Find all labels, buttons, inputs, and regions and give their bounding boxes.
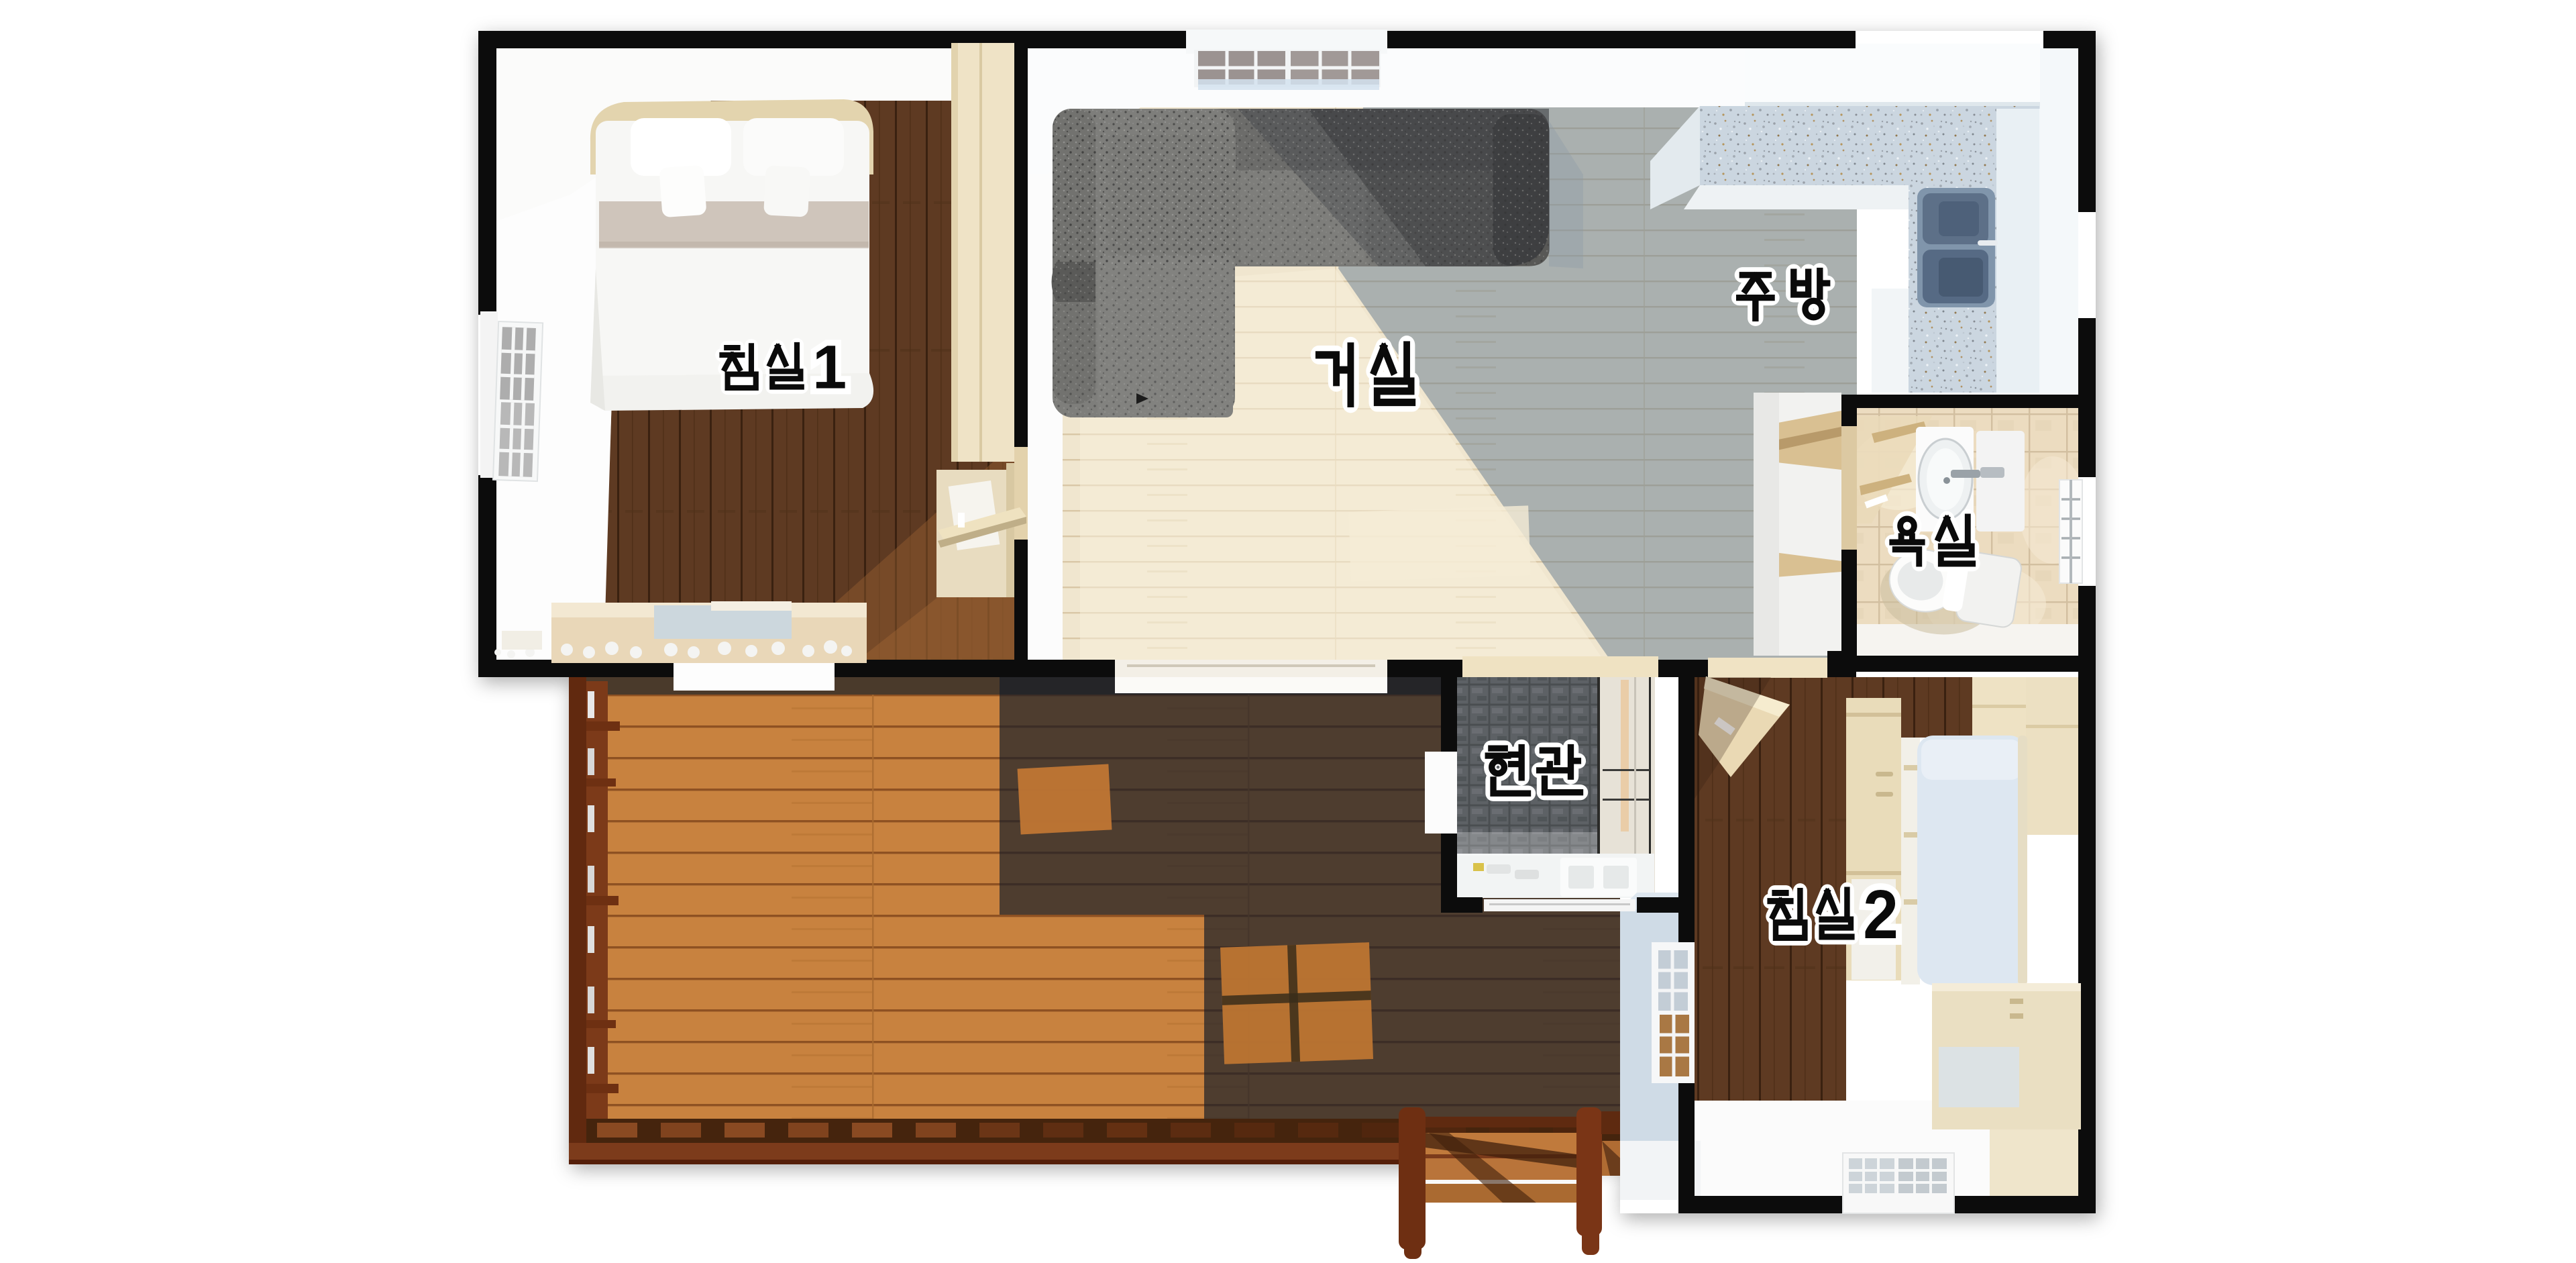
svg-text:1: 1 — [812, 334, 847, 402]
svg-text:2: 2 — [1863, 876, 1898, 953]
